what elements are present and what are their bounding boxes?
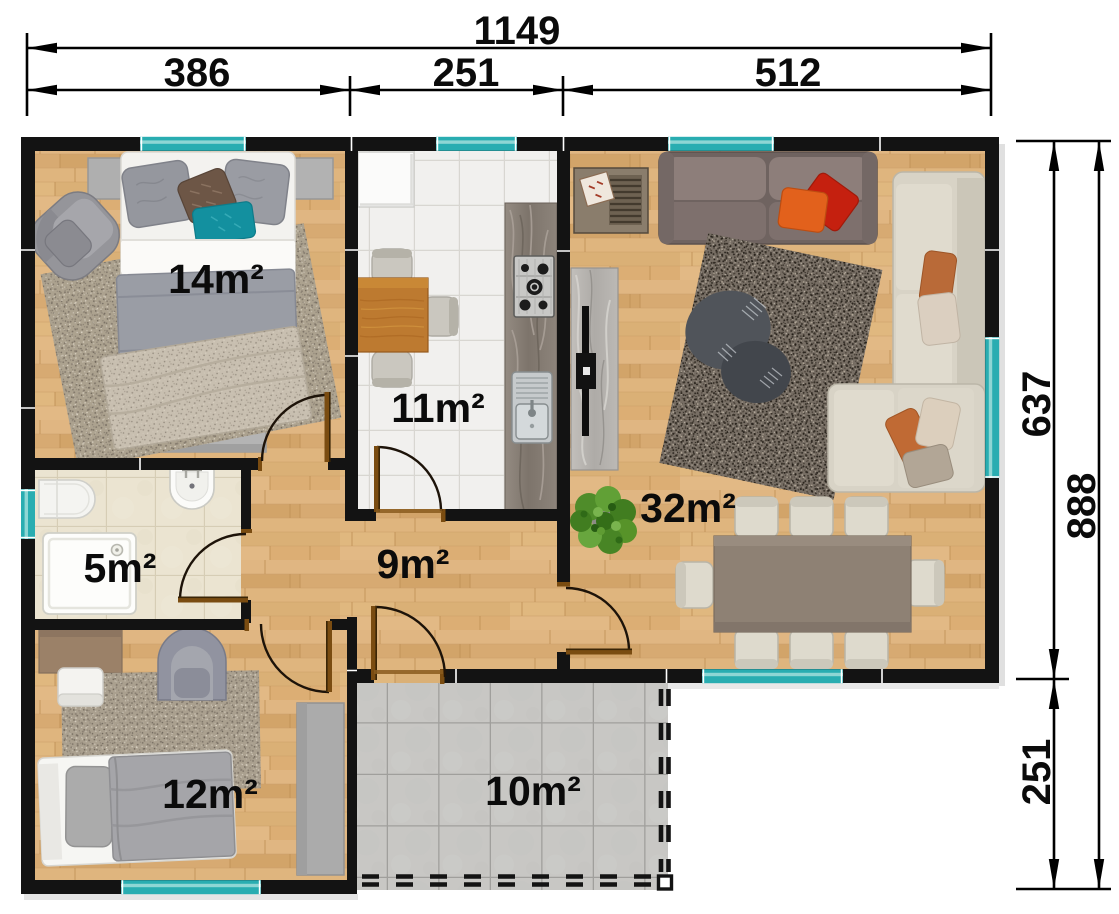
svg-text:5m²: 5m² (84, 545, 157, 591)
svg-text:1149: 1149 (474, 9, 561, 53)
svg-text:251: 251 (1015, 739, 1059, 806)
svg-text:12m²: 12m² (162, 771, 258, 817)
svg-text:251: 251 (433, 51, 500, 95)
svg-text:32m²: 32m² (640, 485, 736, 531)
svg-text:10m²: 10m² (485, 768, 581, 814)
svg-text:386: 386 (164, 51, 231, 95)
svg-text:14m²: 14m² (168, 256, 264, 302)
svg-text:512: 512 (755, 51, 822, 95)
svg-text:11m²: 11m² (391, 385, 484, 431)
svg-text:9m²: 9m² (377, 541, 450, 587)
svg-text:637: 637 (1015, 371, 1059, 438)
svg-text:888: 888 (1060, 473, 1104, 540)
